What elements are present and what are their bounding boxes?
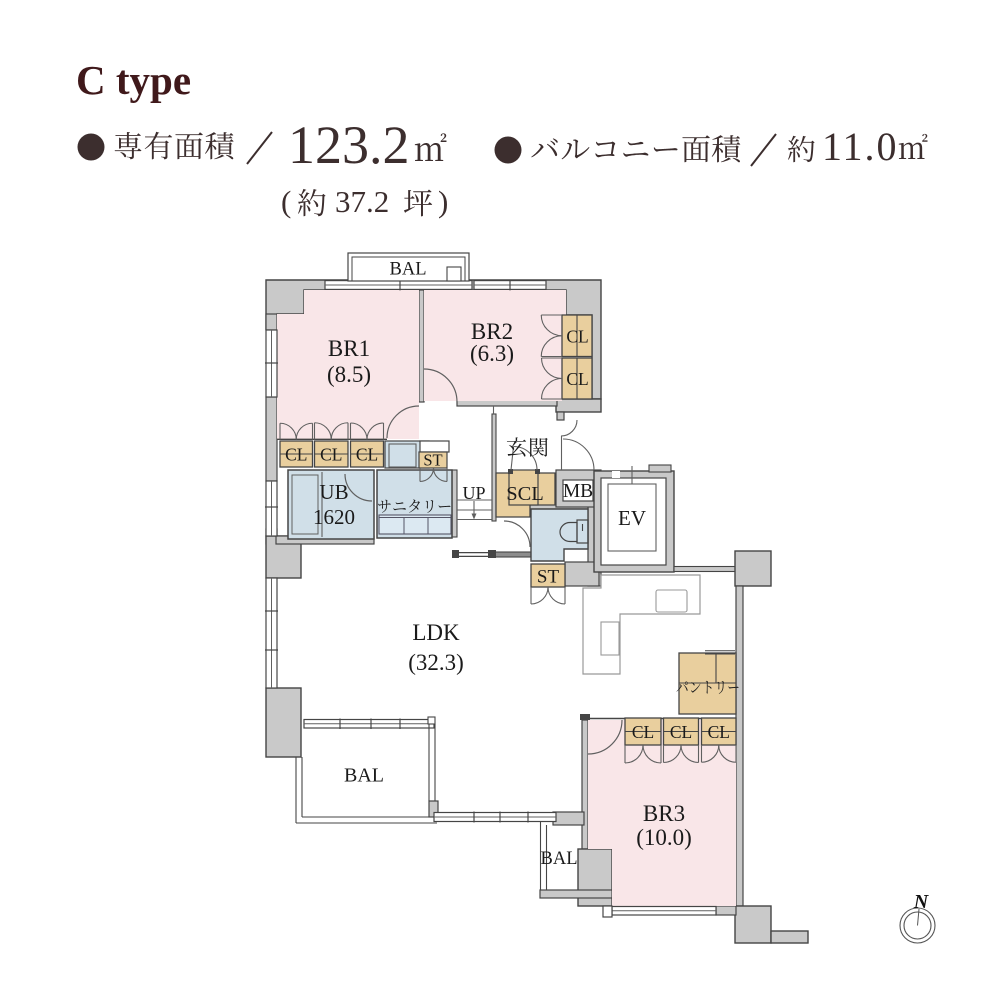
svg-text:123.2: 123.2 bbox=[288, 115, 410, 175]
svg-text:LDK: LDK bbox=[412, 620, 460, 645]
svg-text:(10.0): (10.0) bbox=[636, 825, 692, 850]
svg-text:37.2: 37.2 bbox=[335, 184, 389, 219]
svg-text:1620: 1620 bbox=[313, 505, 355, 529]
svg-text:SCL: SCL bbox=[506, 483, 544, 505]
svg-text:): ) bbox=[438, 184, 448, 219]
svg-text:C type: C type bbox=[76, 57, 191, 103]
svg-text:CL: CL bbox=[285, 445, 307, 465]
svg-text:BAL: BAL bbox=[390, 260, 427, 280]
svg-text:UP: UP bbox=[462, 483, 485, 503]
svg-text:11.0: 11.0 bbox=[822, 124, 899, 169]
svg-text:BR1: BR1 bbox=[328, 336, 370, 361]
svg-text:ST: ST bbox=[423, 451, 442, 470]
svg-text:MB: MB bbox=[563, 481, 593, 502]
svg-text:BAL: BAL bbox=[344, 765, 384, 787]
svg-text:BR3: BR3 bbox=[643, 801, 685, 826]
svg-text:(32.3): (32.3) bbox=[408, 650, 464, 675]
svg-text:(8.5): (8.5) bbox=[327, 362, 371, 387]
svg-text:CL: CL bbox=[356, 445, 378, 465]
svg-text:UB: UB bbox=[319, 480, 348, 504]
svg-text:CL: CL bbox=[566, 369, 588, 389]
svg-text:BAL: BAL bbox=[541, 849, 578, 869]
svg-text:(6.3): (6.3) bbox=[470, 341, 514, 366]
svg-text:N: N bbox=[913, 891, 930, 913]
svg-text:ST: ST bbox=[537, 567, 560, 588]
svg-text:EV: EV bbox=[618, 506, 646, 530]
svg-text:CL: CL bbox=[566, 326, 588, 346]
svg-text:CL: CL bbox=[670, 722, 692, 742]
svg-text:(: ( bbox=[281, 184, 291, 219]
svg-text:CL: CL bbox=[320, 445, 342, 465]
svg-text:CL: CL bbox=[632, 722, 654, 742]
svg-text:CL: CL bbox=[708, 722, 730, 742]
